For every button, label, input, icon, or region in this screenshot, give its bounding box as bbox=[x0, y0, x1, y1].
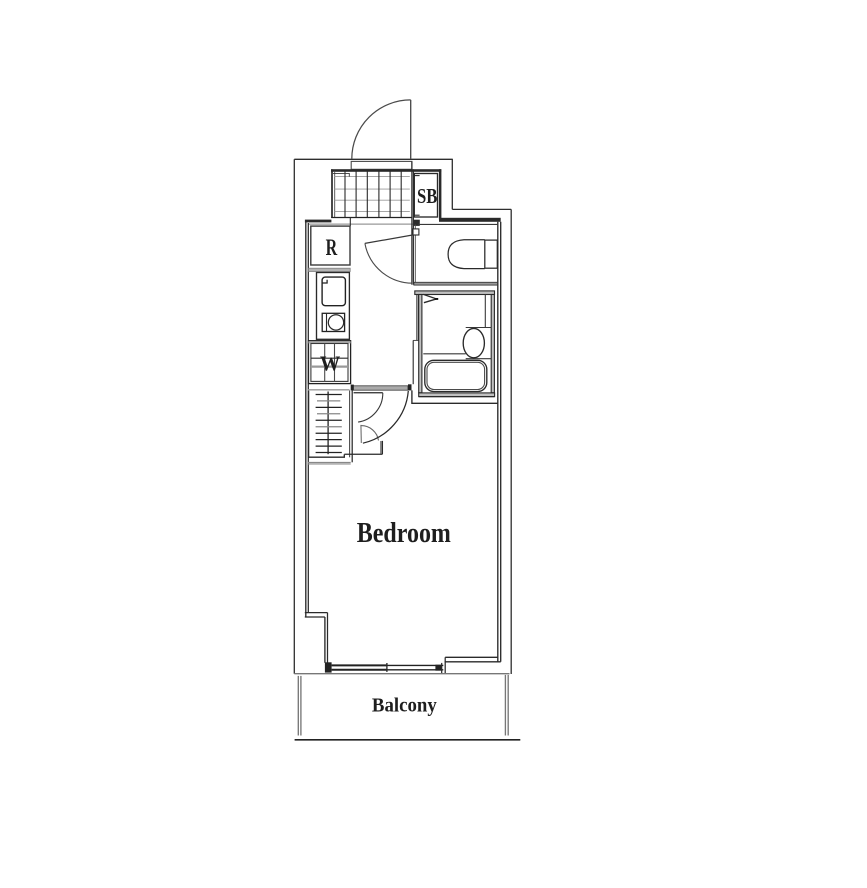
svg-text:Balcony: Balcony bbox=[372, 695, 438, 717]
svg-text:Bedroom: Bedroom bbox=[357, 517, 451, 549]
svg-text:W: W bbox=[320, 351, 340, 375]
svg-text:SB: SB bbox=[417, 184, 437, 208]
svg-text:R: R bbox=[326, 235, 338, 260]
